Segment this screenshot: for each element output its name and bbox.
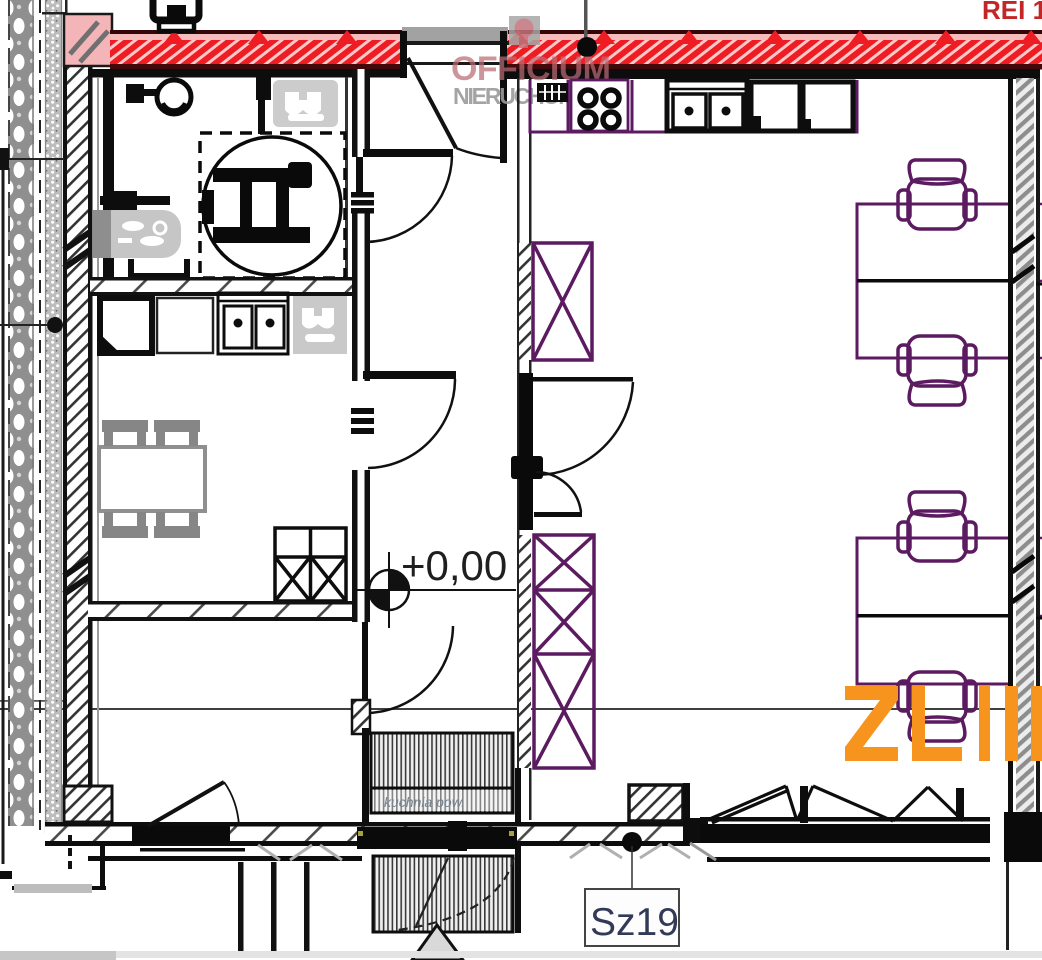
svg-text:kuchnia pow.: kuchnia pow. (384, 794, 465, 810)
svg-text:+0,00: +0,00 (401, 542, 507, 589)
svg-text:Sz19: Sz19 (590, 901, 679, 944)
svg-text:REI 1: REI 1 (982, 0, 1042, 25)
